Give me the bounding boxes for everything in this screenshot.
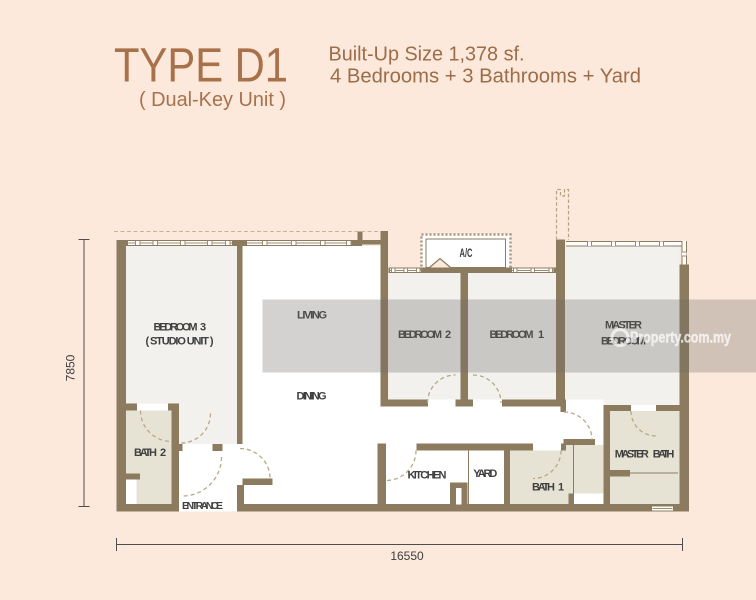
svg-text:Built-Up Size 1,378 sf.: Built-Up Size 1,378 sf. xyxy=(329,43,525,66)
svg-text:7850: 7850 xyxy=(64,354,78,381)
svg-text:BATH: BATH xyxy=(134,447,157,459)
svg-text:4 Bedrooms + 3 Bathrooms + Yar: 4 Bedrooms + 3 Bathrooms + Yard xyxy=(330,65,641,88)
svg-text:DINING: DINING xyxy=(297,391,327,403)
svg-text:YARD: YARD xyxy=(473,468,497,480)
svg-text:16550: 16550 xyxy=(390,549,424,563)
svg-text:TYPE D1: TYPE D1 xyxy=(114,39,288,92)
svg-text:3: 3 xyxy=(200,322,206,334)
svg-text:BEDROOM: BEDROOM xyxy=(154,322,198,334)
svg-text:ENTRANCE: ENTRANCE xyxy=(182,500,223,512)
svg-text:MASTER: MASTER xyxy=(615,449,649,461)
svg-text:BATH: BATH xyxy=(532,482,555,494)
svg-text:A/C: A/C xyxy=(460,248,473,260)
svg-text:2: 2 xyxy=(160,447,166,459)
svg-text:Property.com.my: Property.com.my xyxy=(630,330,731,347)
svg-text:( Dual-Key Unit ): ( Dual-Key Unit ) xyxy=(139,89,286,111)
svg-text:KITCHEN: KITCHEN xyxy=(408,470,447,482)
svg-text:( STUDIO UNIT ): ( STUDIO UNIT ) xyxy=(146,336,214,348)
svg-text:BATH: BATH xyxy=(653,449,675,461)
svg-text:1: 1 xyxy=(558,482,564,494)
